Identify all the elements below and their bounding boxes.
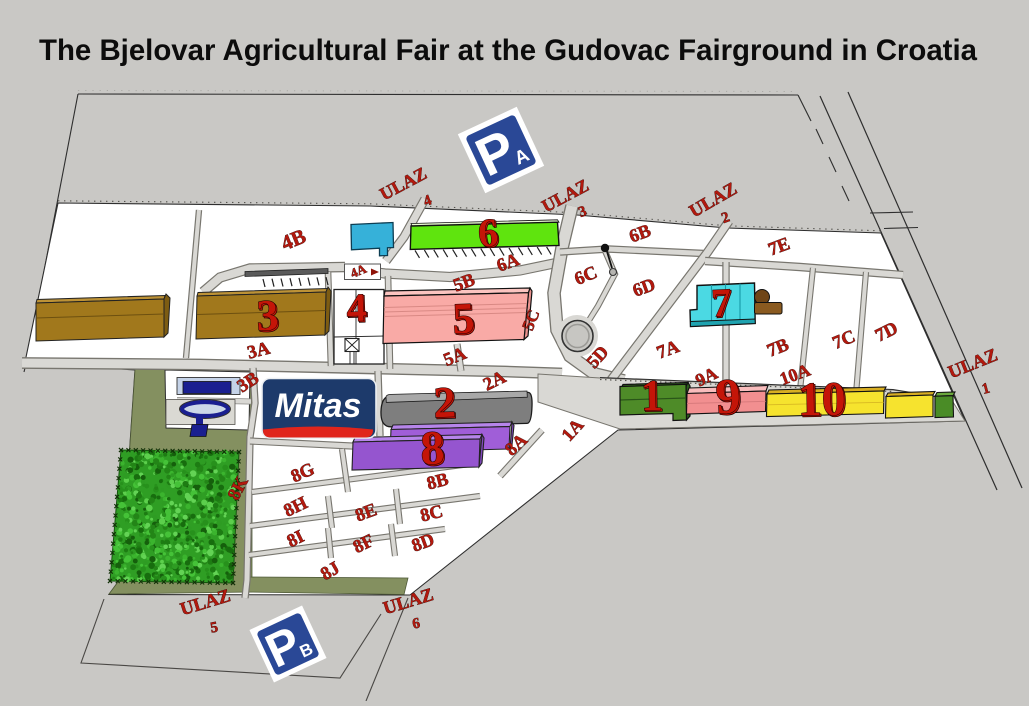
- svg-text:7: 7: [710, 280, 732, 326]
- svg-text:9: 9: [714, 367, 742, 424]
- svg-text:10: 10: [797, 373, 846, 427]
- svg-text:The Bjelovar Agricultural Fair: The Bjelovar Agricultural Fair at the Gu…: [39, 34, 978, 67]
- svg-text:5: 5: [452, 294, 476, 344]
- svg-text:2: 2: [433, 378, 457, 428]
- svg-text:4: 4: [346, 285, 368, 331]
- svg-text:8: 8: [420, 422, 446, 476]
- svg-text:Mitas: Mitas: [275, 387, 362, 425]
- svg-text:1: 1: [640, 371, 663, 420]
- svg-text:3: 3: [256, 291, 280, 341]
- svg-text:6: 6: [477, 209, 500, 255]
